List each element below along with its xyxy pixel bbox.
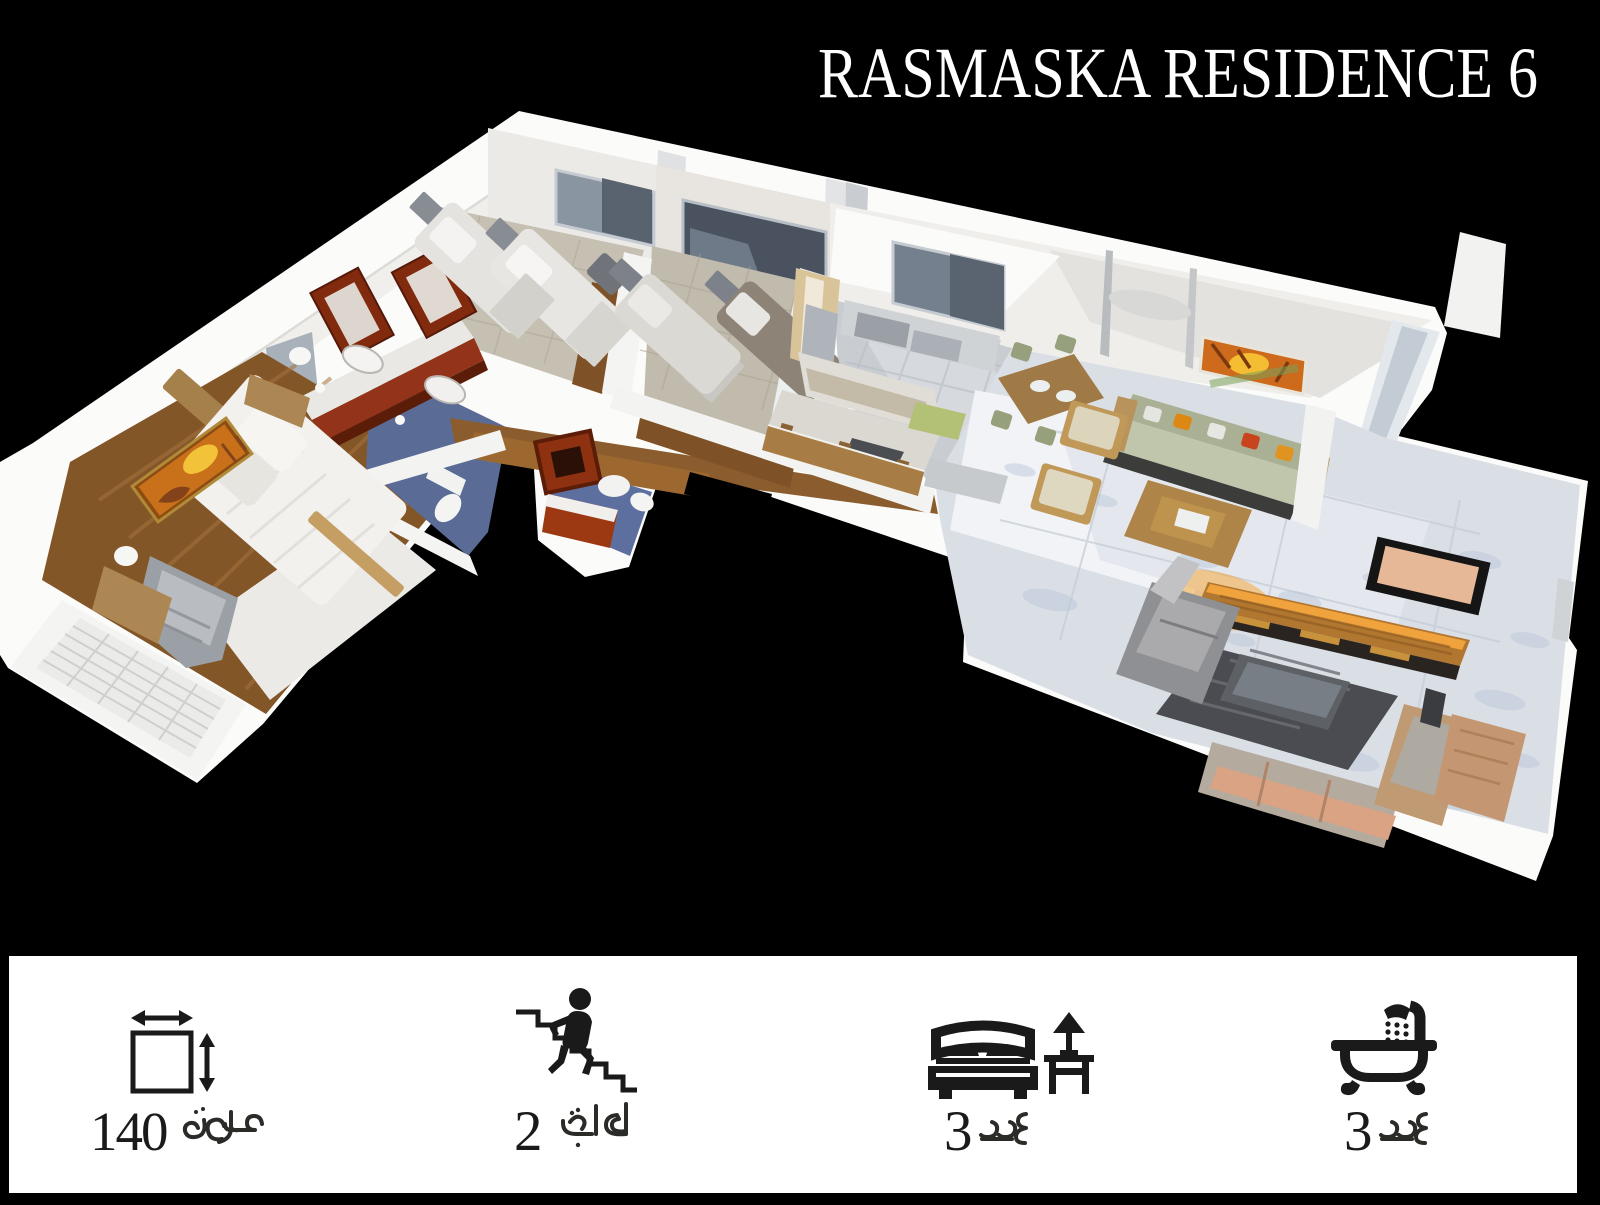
svg-text:3: 3	[944, 1100, 973, 1163]
svg-text:140: 140	[90, 1101, 167, 1162]
svg-text:3: 3	[1344, 1100, 1373, 1163]
svg-text:RASMASKA RESIDENCE 6: RASMASKA RESIDENCE 6	[818, 33, 1538, 113]
svg-text:2: 2	[514, 1100, 543, 1163]
